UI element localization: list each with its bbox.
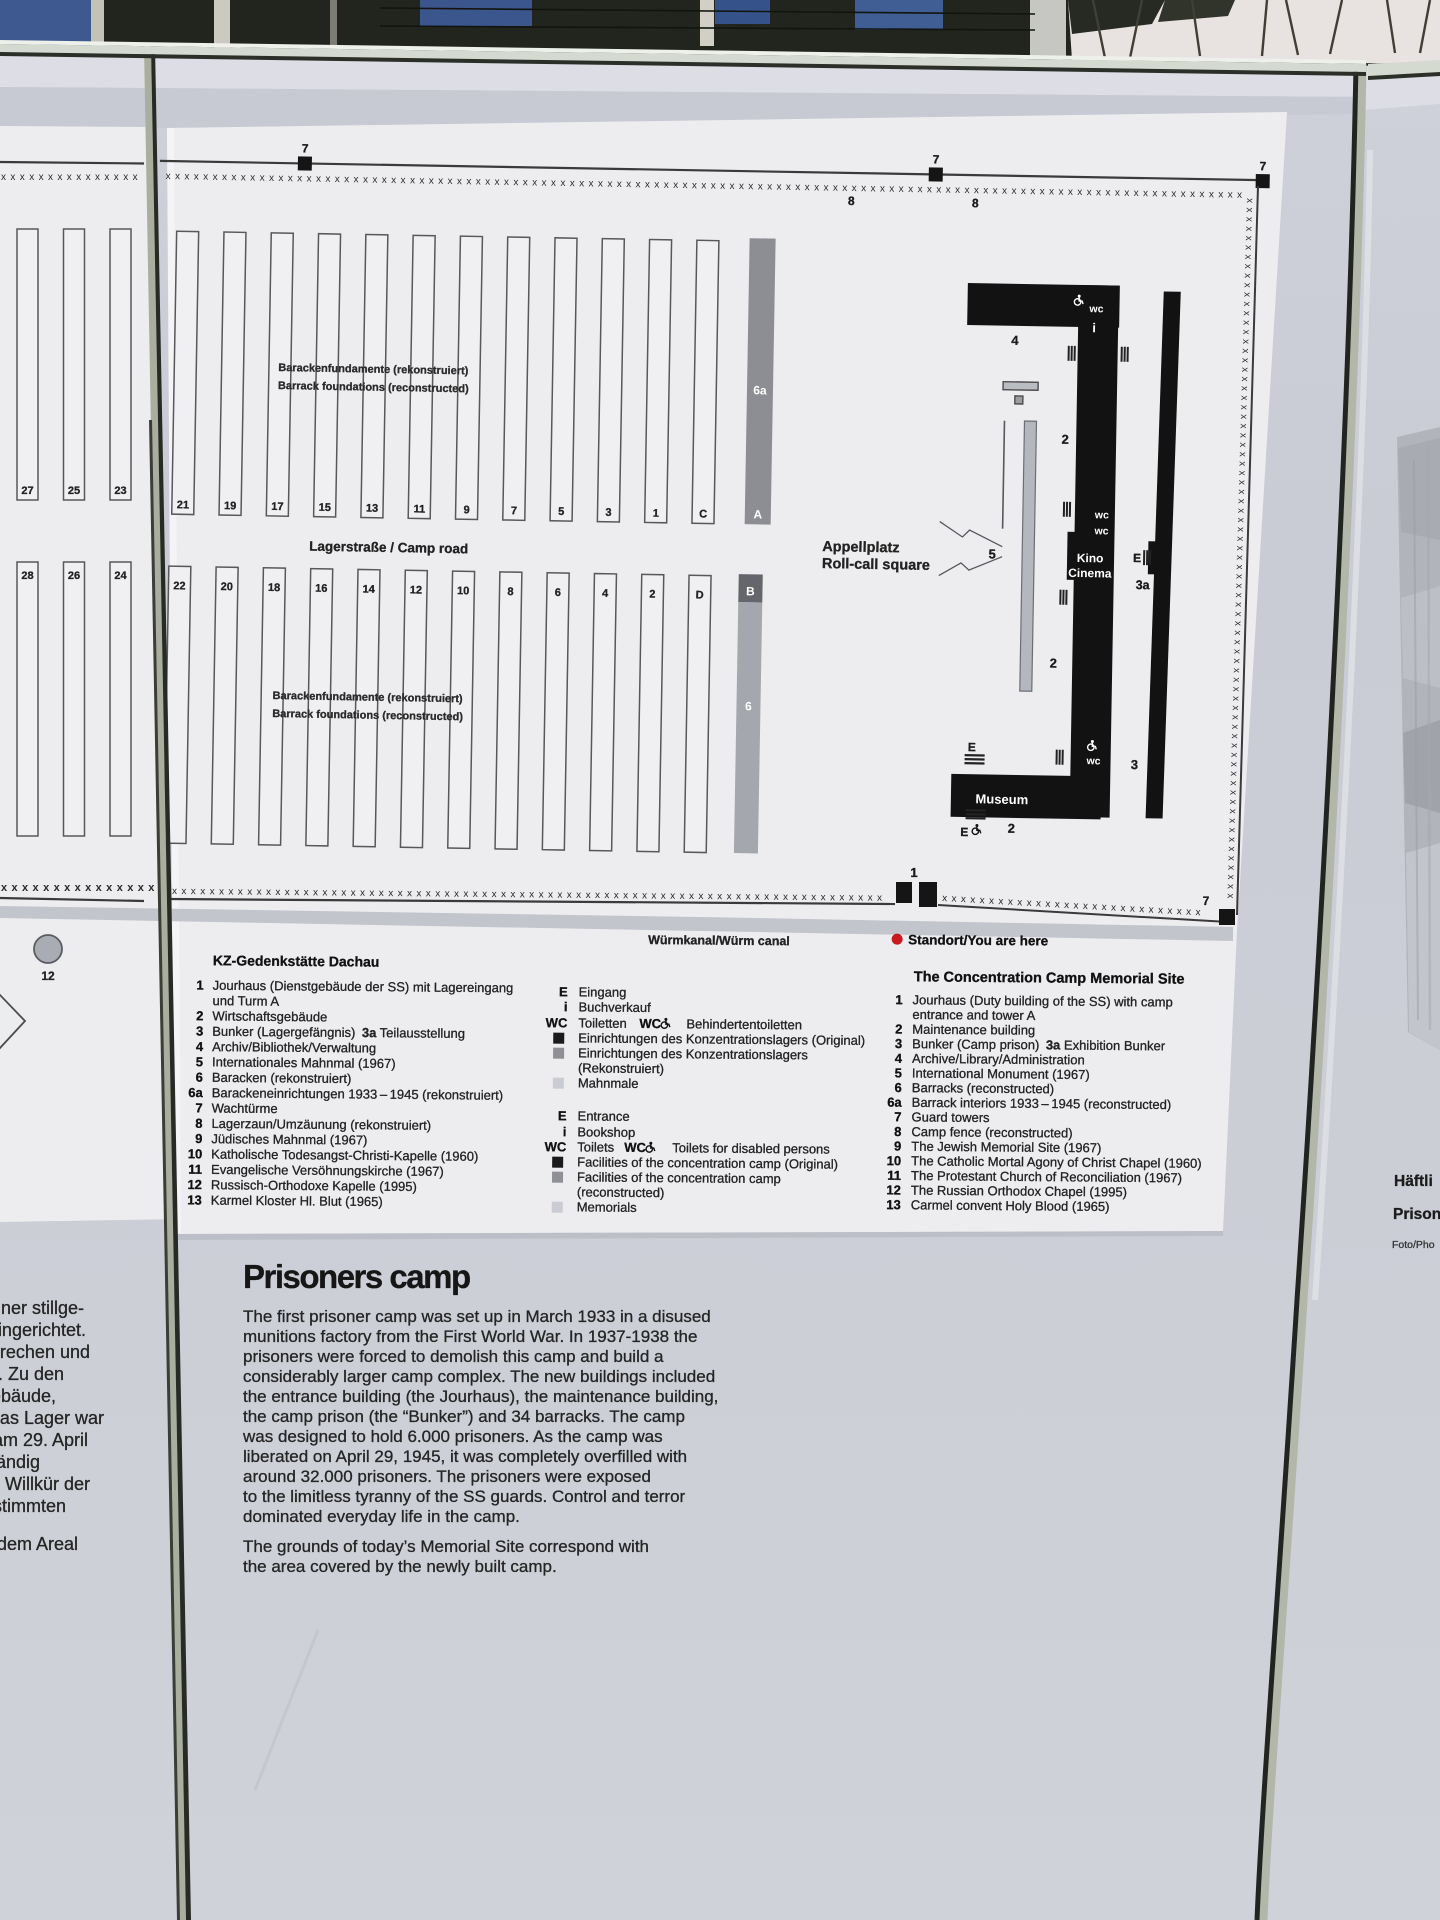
svg-text:(reconstructed): (reconstructed): [577, 1184, 665, 1200]
svg-text:Museum: Museum: [975, 791, 1028, 807]
svg-text:ner stillge-: ner stillge-: [1, 1298, 84, 1318]
svg-text:Prison: Prison: [1393, 1206, 1440, 1223]
svg-text:Archiv/Bibliothek/Verwaltung: Archiv/Bibliothek/Verwaltung: [212, 1039, 376, 1055]
svg-text:Memorials: Memorials: [577, 1199, 638, 1215]
svg-text:the camp prison (the “Bunker”): the camp prison (the “Bunker”) and 34 ba…: [243, 1407, 685, 1426]
svg-text:13: 13: [187, 1192, 202, 1207]
svg-text:wc: wc: [1085, 755, 1100, 767]
svg-text:21: 21: [177, 499, 189, 511]
svg-text:9: 9: [463, 504, 469, 516]
svg-text:6a: 6a: [188, 1085, 203, 1100]
svg-text:around 32.000 prisoners. The p: around 32.000 prisoners. The prisoners w…: [243, 1467, 651, 1486]
svg-text:6a: 6a: [753, 383, 767, 397]
svg-text:9: 9: [195, 1131, 202, 1146]
svg-text:6a: 6a: [887, 1095, 902, 1110]
svg-text:Toilets for disabled persons: Toilets for disabled persons: [672, 1140, 830, 1156]
svg-text:Cinema: Cinema: [1068, 566, 1112, 581]
svg-text:Wirtschaftsgebäude: Wirtschaftsgebäude: [212, 1008, 327, 1024]
svg-text:WC: WC: [639, 1016, 661, 1031]
svg-text:Eingang: Eingang: [579, 984, 627, 999]
svg-text:wc: wc: [1088, 303, 1103, 315]
svg-text:liberated on April 29, 1945, i: liberated on April 29, 1945, it was comp…: [243, 1447, 687, 1466]
svg-text:5: 5: [895, 1065, 902, 1080]
svg-text:20: 20: [221, 581, 233, 593]
svg-text:Guard towers: Guard towers: [912, 1109, 991, 1125]
svg-text:Behindertentoiletten: Behindertentoiletten: [686, 1016, 802, 1032]
svg-text:WC: WC: [624, 1140, 646, 1155]
svg-text:(Rekonstruiert): (Rekonstruiert): [578, 1060, 664, 1076]
svg-text:6: 6: [745, 699, 752, 713]
svg-text:dominated everyday life in the: dominated everyday life in the camp.: [243, 1507, 520, 1526]
svg-text:Wachtürme: Wachtürme: [212, 1100, 278, 1116]
svg-text:4: 4: [602, 588, 609, 600]
svg-text:4: 4: [1011, 333, 1019, 348]
svg-text:E: E: [960, 825, 968, 839]
svg-text:E: E: [1133, 551, 1141, 565]
svg-text:Häftli: Häftli: [1394, 1173, 1433, 1190]
svg-text:8: 8: [894, 1124, 901, 1139]
svg-text:the entrance building (the Jou: the entrance building (the Jourhaus), th…: [243, 1387, 718, 1406]
svg-text:Lagerstraße / Camp road: Lagerstraße / Camp road: [309, 539, 468, 557]
svg-text:6: 6: [895, 1080, 902, 1095]
svg-text:11: 11: [887, 1168, 901, 1183]
svg-text:Katholische Todesangst-Christi: Katholische Todesangst-Christi-Kapelle (…: [211, 1146, 478, 1163]
svg-text:Facilities of the concentratio: Facilities of the concentration camp: [577, 1169, 781, 1186]
svg-text:Würmkanal/Würm canal: Würmkanal/Würm canal: [648, 933, 790, 948]
svg-text:28: 28: [21, 570, 33, 582]
svg-text:7: 7: [302, 141, 309, 155]
svg-text:The grounds of today’s Memoria: The grounds of today’s Memorial Site cor…: [243, 1537, 649, 1556]
svg-text:10: 10: [887, 1153, 902, 1168]
svg-text:und Turm A: und Turm A: [212, 993, 279, 1009]
svg-text:sgebäude,: sgebäude,: [0, 1386, 56, 1406]
svg-text:1: 1: [895, 992, 902, 1007]
svg-text:to the limitless tyranny of th: to the limitless tyranny of the SS guard…: [243, 1487, 686, 1506]
svg-text:16: 16: [315, 583, 327, 595]
svg-text:stimmten: stimmten: [0, 1496, 66, 1516]
svg-text:Baracken (rekonstruiert): Baracken (rekonstruiert): [212, 1070, 352, 1086]
svg-text:A: A: [753, 507, 762, 521]
svg-text:4: 4: [196, 1039, 204, 1054]
svg-text:7: 7: [511, 505, 517, 517]
svg-text:25: 25: [68, 485, 80, 497]
svg-text:Lagerzaun/Umzäunung (rekonstru: Lagerzaun/Umzäunung (rekonstruiert): [211, 1116, 431, 1133]
svg-text:7: 7: [933, 152, 940, 166]
svg-text:D: D: [696, 589, 704, 601]
svg-text:26: 26: [68, 570, 80, 582]
svg-text:22: 22: [173, 580, 185, 592]
svg-text:11: 11: [188, 1162, 202, 1177]
svg-text:KZ-Gedenkstätte Dachau: KZ-Gedenkstätte Dachau: [213, 952, 380, 969]
svg-text:12: 12: [886, 1182, 901, 1197]
svg-text:Roll-call square: Roll-call square: [822, 556, 930, 574]
svg-text:Foto/Pho: Foto/Pho: [1392, 1239, 1435, 1251]
svg-text:i: i: [564, 999, 568, 1014]
svg-text:9: 9: [894, 1139, 901, 1154]
svg-text:3: 3: [196, 1024, 203, 1039]
svg-text:Appellplatz: Appellplatz: [822, 539, 900, 556]
svg-text:15: 15: [319, 502, 331, 514]
svg-text:2: 2: [895, 1021, 902, 1036]
svg-text:Kino: Kino: [1077, 551, 1104, 565]
svg-text:Maintenance building: Maintenance building: [912, 1022, 1035, 1038]
svg-text:Das Lager war: Das Lager war: [0, 1408, 104, 1428]
svg-text:Evangelische Versöhnungskirche: Evangelische Versöhnungskirche (1967): [211, 1162, 444, 1179]
svg-text:Prisoners camp: Prisoners camp: [243, 1258, 470, 1295]
svg-text:brechen und: brechen und: [0, 1342, 90, 1362]
svg-text:7: 7: [1203, 894, 1210, 908]
svg-text:xxxxxxxxxxxxxxx: xxxxxxxxxxxxxxx: [1, 882, 159, 894]
svg-text:am 29. April: am 29. April: [0, 1430, 88, 1450]
svg-text:24: 24: [114, 570, 127, 582]
svg-text:12: 12: [410, 584, 422, 596]
svg-text:14: 14: [362, 584, 375, 596]
svg-text:2: 2: [1061, 432, 1068, 447]
svg-text:Toiletten: Toiletten: [578, 1015, 627, 1030]
svg-text:5: 5: [196, 1054, 203, 1069]
svg-text:19: 19: [224, 500, 236, 512]
svg-text:8: 8: [195, 1116, 202, 1131]
svg-text:12: 12: [187, 1177, 202, 1192]
svg-text:the area covered by the newly: the area covered by the newly built camp…: [243, 1557, 557, 1576]
svg-text:i: i: [563, 1124, 567, 1139]
svg-text:6: 6: [555, 587, 561, 599]
svg-text:WC: WC: [546, 1015, 568, 1030]
svg-text:Bookshop: Bookshop: [577, 1124, 635, 1140]
svg-text:2: 2: [1008, 821, 1015, 836]
svg-text:ändig: ändig: [0, 1452, 40, 1472]
svg-text:Toilets: Toilets: [577, 1139, 614, 1154]
svg-text:Karmel Kloster Hl. Blut (1965): Karmel Kloster Hl. Blut (1965): [211, 1193, 383, 1209]
svg-text:2: 2: [196, 1008, 203, 1023]
svg-text:13: 13: [366, 503, 378, 515]
svg-text:E: E: [559, 984, 568, 999]
svg-text:The Concentration Camp Memoria: The Concentration Camp Memorial Site: [914, 969, 1185, 987]
svg-text:ingerichtet.: ingerichtet.: [0, 1320, 86, 1340]
svg-text:C: C: [699, 508, 707, 520]
svg-text:Bunker (Lagergefängnis) 3a Tei: Bunker (Lagergefängnis) 3a Teilausstellu…: [212, 1024, 465, 1041]
svg-text:Barracks (reconstructed): Barracks (reconstructed): [912, 1080, 1054, 1096]
svg-text:considerably larger camp compl: considerably larger camp complex. The ne…: [243, 1367, 715, 1386]
svg-text:Mahnmale: Mahnmale: [578, 1075, 639, 1091]
svg-text:2: 2: [1050, 656, 1057, 671]
svg-text:7: 7: [1260, 159, 1267, 173]
svg-text:entrance and tower A: entrance and tower A: [912, 1007, 1035, 1023]
svg-text:wc: wc: [1093, 525, 1108, 537]
svg-text:5: 5: [558, 506, 564, 518]
svg-text:n. Zu den: n. Zu den: [0, 1364, 64, 1384]
svg-text:B: B: [746, 584, 755, 598]
svg-text:Entrance: Entrance: [578, 1108, 630, 1123]
svg-text:8: 8: [972, 196, 979, 210]
svg-text:17: 17: [271, 501, 283, 513]
svg-text:8: 8: [507, 586, 513, 598]
svg-text:Buchverkauf: Buchverkauf: [578, 999, 651, 1015]
svg-text:The first prisoner camp was se: The first prisoner camp was set up in Ma…: [243, 1307, 711, 1326]
svg-text:was designed to hold 6.000 pri: was designed to hold 6.000 prisoners. As…: [242, 1427, 663, 1446]
svg-text:xxxxxxxxxxxxxxx: xxxxxxxxxxxxxxx: [1, 172, 142, 183]
svg-text:2: 2: [649, 589, 655, 601]
svg-text:7: 7: [195, 1100, 202, 1115]
svg-text:3a: 3a: [1136, 578, 1151, 592]
svg-text:3: 3: [895, 1036, 902, 1051]
svg-text:E: E: [968, 740, 976, 754]
svg-text:wc: wc: [1094, 509, 1109, 521]
svg-text:Internationales Mahnmal (1967): Internationales Mahnmal (1967): [212, 1054, 396, 1071]
svg-text:4: 4: [895, 1051, 903, 1066]
svg-text:5: 5: [988, 546, 995, 561]
svg-text:prisoners were forced to demol: prisoners were forced to demolish this c…: [243, 1347, 664, 1366]
svg-text:Carmel convent Holy Blood (196: Carmel convent Holy Blood (1965): [911, 1197, 1110, 1214]
svg-text:1: 1: [653, 508, 659, 520]
svg-text:Russisch-Orthodoxe Kapelle (19: Russisch-Orthodoxe Kapelle (1995): [211, 1177, 417, 1194]
svg-text:7: 7: [894, 1109, 901, 1124]
svg-text:munitions factory from the Fir: munitions factory from the First World W…: [243, 1327, 697, 1346]
svg-text:11: 11: [413, 503, 425, 515]
svg-text:18: 18: [268, 582, 280, 594]
svg-text:n Willkür der: n Willkür der: [0, 1474, 90, 1494]
svg-text:Standort/You are here: Standort/You are here: [908, 932, 1049, 948]
svg-text:8: 8: [848, 194, 855, 208]
svg-text:12: 12: [41, 969, 55, 983]
svg-text:3: 3: [1131, 757, 1138, 772]
svg-text:23: 23: [114, 485, 126, 497]
svg-text:WC: WC: [545, 1139, 567, 1154]
svg-text:10: 10: [457, 585, 469, 597]
svg-text:Jüdisches Mahnmal (1967): Jüdisches Mahnmal (1967): [211, 1131, 367, 1147]
svg-text:27: 27: [21, 485, 33, 497]
svg-text:13: 13: [886, 1197, 901, 1212]
svg-text:E: E: [558, 1108, 567, 1123]
svg-text:i: i: [1092, 320, 1096, 335]
svg-text:1: 1: [196, 978, 203, 993]
svg-text:1: 1: [910, 865, 917, 880]
svg-text:10: 10: [188, 1146, 203, 1161]
svg-text:6: 6: [196, 1070, 203, 1085]
svg-text:3: 3: [605, 507, 611, 519]
svg-text:dem Areal: dem Areal: [0, 1534, 78, 1554]
